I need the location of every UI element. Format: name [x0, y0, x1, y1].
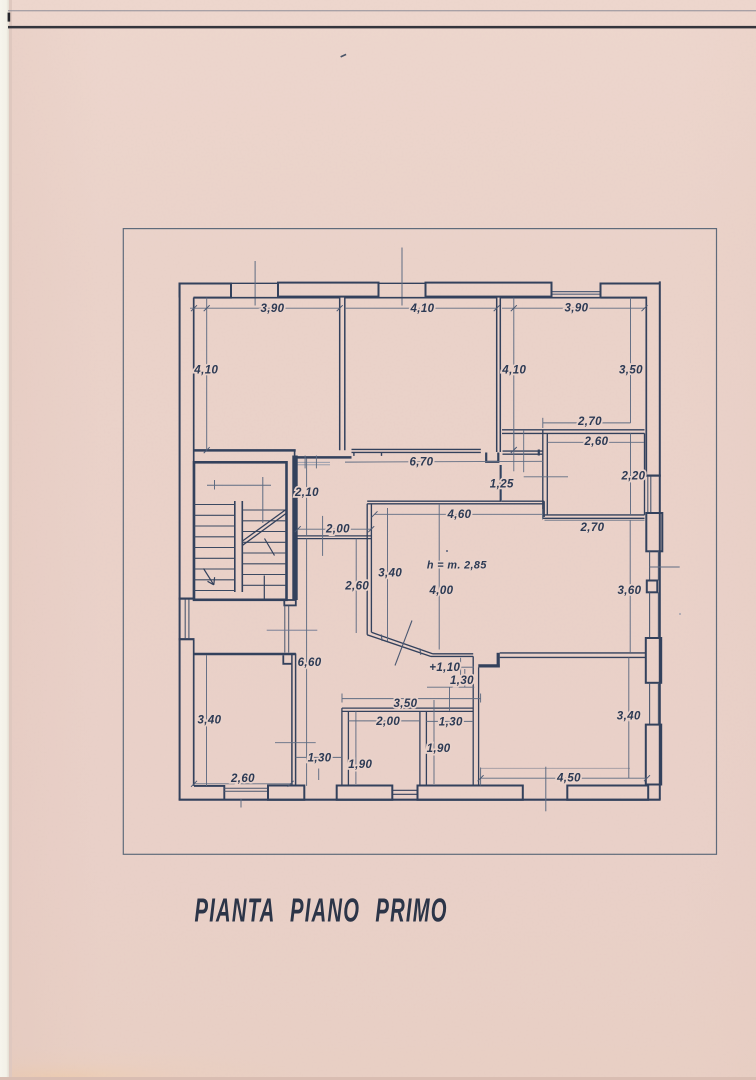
svg-text:1,30: 1,30 — [308, 752, 332, 764]
svg-text:1,30: 1,30 — [439, 716, 463, 728]
svg-text:2,00: 2,00 — [325, 524, 350, 536]
svg-text:3,40: 3,40 — [198, 715, 222, 727]
svg-text:h = m. 2,85: h = m. 2,85 — [427, 559, 488, 571]
svg-text:2,70: 2,70 — [577, 416, 602, 428]
svg-text:3,50: 3,50 — [394, 698, 418, 710]
svg-text:6,60: 6,60 — [298, 657, 322, 669]
svg-text:4,10: 4,10 — [501, 365, 526, 377]
svg-text:2,60: 2,60 — [344, 581, 369, 593]
svg-text:2,00: 2,00 — [375, 716, 400, 728]
svg-text:PIANTA PIANO PRIMO: PIANTA PIANO PRIMO — [195, 891, 448, 929]
svg-text:1,90: 1,90 — [427, 743, 451, 755]
svg-text:3,90: 3,90 — [261, 303, 285, 315]
svg-text:2,20: 2,20 — [621, 471, 646, 483]
svg-text:+1,10: +1,10 — [429, 662, 460, 674]
svg-text:3,40: 3,40 — [378, 568, 402, 580]
svg-text:2,10: 2,10 — [294, 487, 319, 499]
svg-text:2,60: 2,60 — [230, 773, 255, 785]
svg-text:1,25: 1,25 — [490, 479, 514, 491]
svg-text:1,30: 1,30 — [450, 675, 474, 687]
svg-text:3,40: 3,40 — [617, 711, 641, 723]
svg-text:3,60: 3,60 — [618, 585, 642, 597]
svg-text:4,10: 4,10 — [410, 303, 435, 315]
svg-text:3,50: 3,50 — [619, 365, 643, 377]
svg-text:3,90: 3,90 — [565, 303, 589, 315]
svg-text:2,60: 2,60 — [584, 436, 609, 448]
svg-text:4,00: 4,00 — [429, 585, 454, 597]
svg-text:1,90: 1,90 — [348, 759, 372, 771]
svg-text:4,60: 4,60 — [447, 509, 472, 521]
svg-text:6,70: 6,70 — [410, 456, 434, 468]
svg-text:4,10: 4,10 — [193, 365, 218, 377]
svg-text:4,50: 4,50 — [556, 773, 581, 785]
svg-text:2,70: 2,70 — [580, 522, 605, 534]
